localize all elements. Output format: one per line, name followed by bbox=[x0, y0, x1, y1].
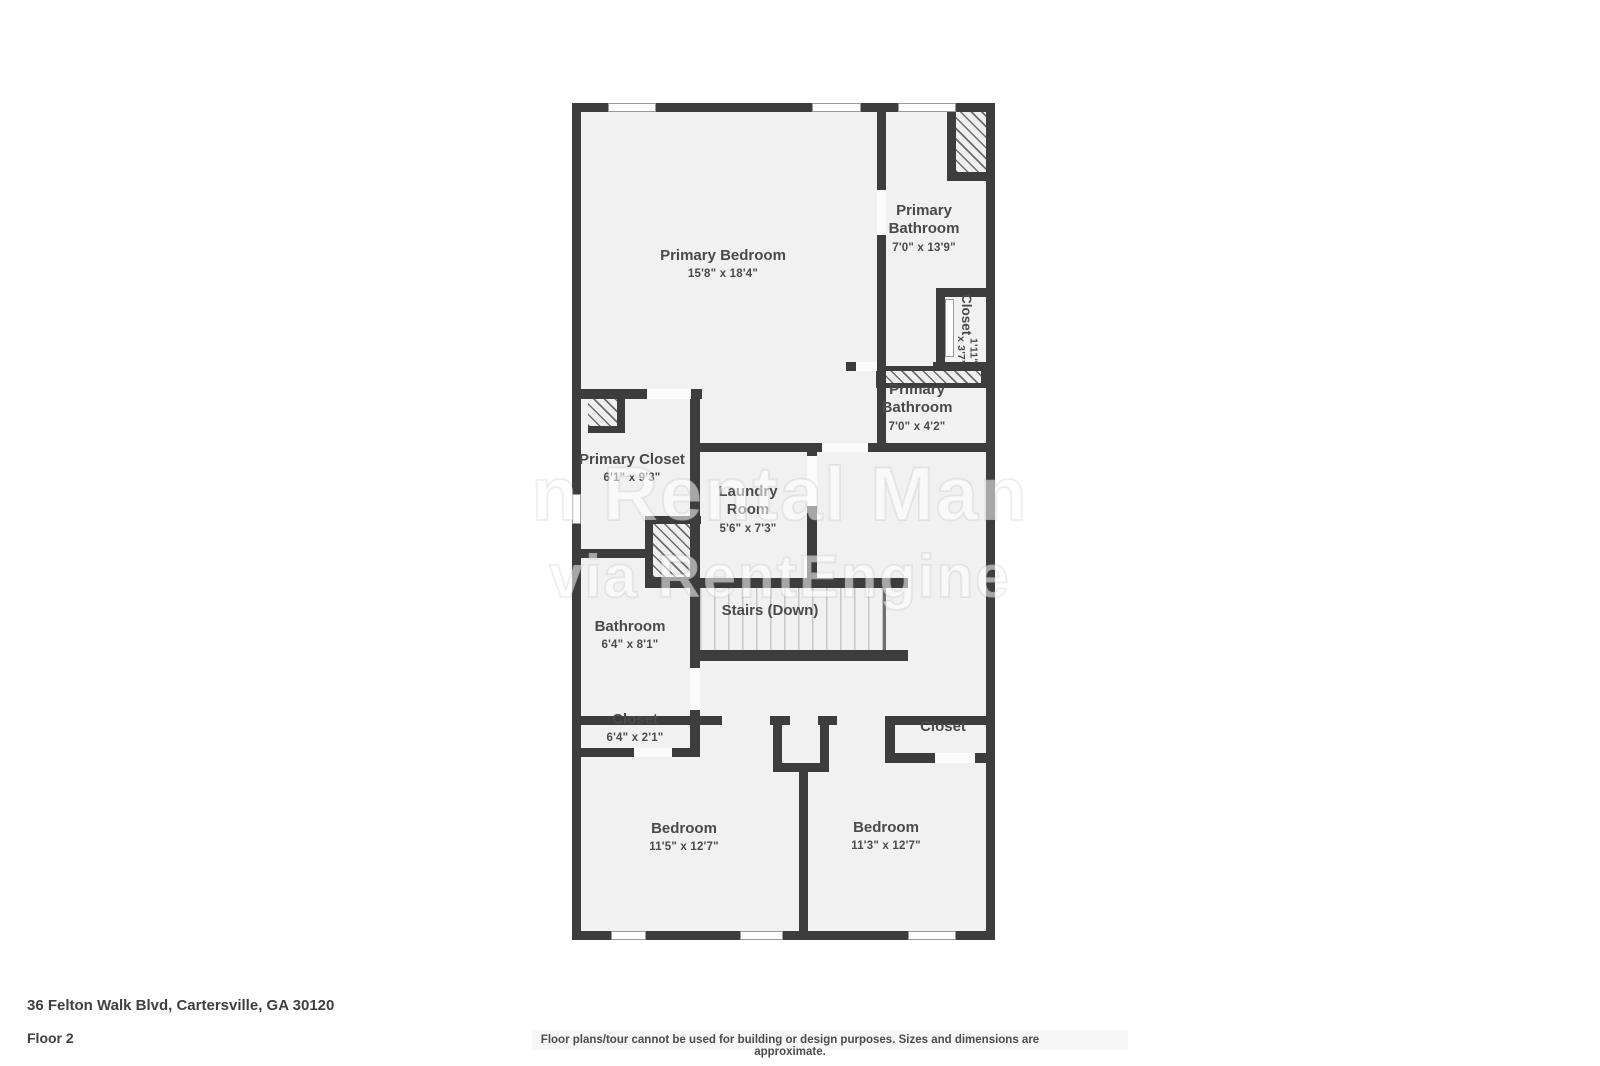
footer-disclaimer: Floor plans/tour cannot be used for buil… bbox=[540, 1034, 1040, 1058]
room-name: Primary Bathroom bbox=[879, 202, 969, 239]
door-opening bbox=[634, 748, 672, 757]
footer-address: 36 Felton Walk Blvd, Cartersville, GA 30… bbox=[27, 997, 334, 1014]
window bbox=[908, 931, 956, 940]
room-label-primary-bedroom: Primary Bedroom 15'8" x 18'4" bbox=[643, 247, 803, 281]
room-name: Bedroom bbox=[816, 819, 956, 837]
room-name: Closet bbox=[958, 294, 974, 335]
room-name: Primary Bedroom bbox=[643, 247, 803, 265]
room-dims: 11'3" x 12'7" bbox=[816, 839, 956, 853]
room-dims: 6'4" x 8'1" bbox=[570, 638, 690, 652]
wall-segment bbox=[672, 748, 700, 757]
room-label-bedroom-right: Bedroom 11'3" x 12'7" bbox=[816, 819, 956, 853]
wall-segment bbox=[895, 753, 935, 763]
room-label-primary-bathroom-lower: Primary Bathroom 7'0" x 4'2" bbox=[862, 381, 972, 434]
door-opening bbox=[647, 389, 691, 399]
wall-segment bbox=[581, 748, 634, 757]
door-opening bbox=[856, 362, 877, 371]
room-name: Bedroom bbox=[614, 820, 754, 838]
room-label-closet-rotated: Closet 1'11" x 3'7" bbox=[952, 294, 980, 366]
room-name: Closet bbox=[575, 711, 695, 729]
wall-segment bbox=[799, 772, 808, 931]
room-label-closet-left: Closet 6'4" x 2'1" bbox=[575, 711, 695, 745]
wall-segment bbox=[773, 763, 829, 772]
watermark-line-1: n Rental Man bbox=[500, 455, 1060, 535]
watermark-line-2: via RentEngine bbox=[520, 545, 1040, 608]
door-opening bbox=[935, 753, 975, 763]
window bbox=[611, 931, 646, 940]
room-label-bedroom-left: Bedroom 11'5" x 12'7" bbox=[614, 820, 754, 854]
wall-segment bbox=[581, 389, 647, 399]
wall-segment bbox=[936, 288, 945, 362]
window bbox=[740, 931, 783, 940]
window bbox=[812, 103, 861, 112]
wall-segment bbox=[975, 753, 986, 763]
room-label-primary-bathroom-upper: Primary Bathroom 7'0" x 13'9" bbox=[879, 202, 969, 255]
room-name: Bathroom bbox=[570, 618, 690, 636]
room-dims: 1'11" x 3'7" bbox=[954, 335, 980, 366]
room-label-closet-right: Closet bbox=[893, 718, 993, 736]
floor-plan-page: Primary Bedroom 15'8" x 18'4" Primary Ba… bbox=[0, 0, 1600, 1066]
room-name: Closet bbox=[893, 718, 993, 736]
wall-segment bbox=[868, 443, 995, 452]
room-name: Primary Bathroom bbox=[862, 381, 972, 418]
closet-hatch bbox=[588, 393, 625, 433]
room-label-bathroom: Bathroom 6'4" x 8'1" bbox=[570, 618, 690, 652]
footer-floor: Floor 2 bbox=[27, 1030, 74, 1046]
wall-segment bbox=[846, 362, 856, 371]
room-dims: 15'8" x 18'4" bbox=[643, 267, 803, 281]
room-dims: 6'4" x 2'1" bbox=[575, 731, 695, 745]
room-dims: 7'0" x 4'2" bbox=[862, 420, 972, 434]
door-opening bbox=[822, 443, 868, 452]
room-dims: 11'5" x 12'7" bbox=[614, 840, 754, 854]
wall-segment bbox=[690, 650, 908, 661]
window bbox=[608, 103, 656, 112]
window bbox=[898, 103, 956, 112]
door-opening bbox=[690, 668, 700, 710]
room-dims: 7'0" x 13'9" bbox=[879, 241, 969, 255]
